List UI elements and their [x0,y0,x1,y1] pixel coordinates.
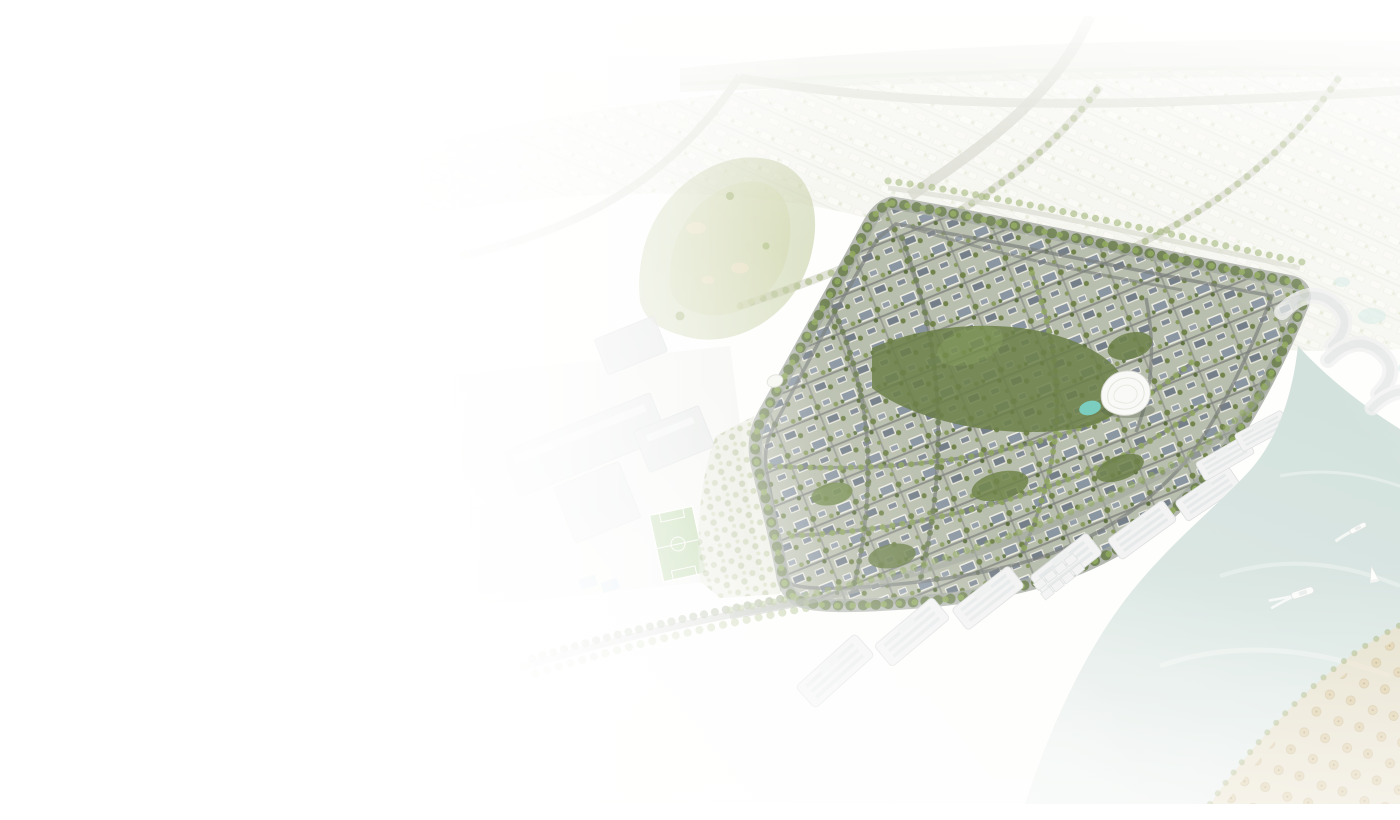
aerial-masterplan-render [40,16,1400,804]
white-fade-overlays [40,16,1400,804]
aerial-render-canvas [40,16,1400,804]
